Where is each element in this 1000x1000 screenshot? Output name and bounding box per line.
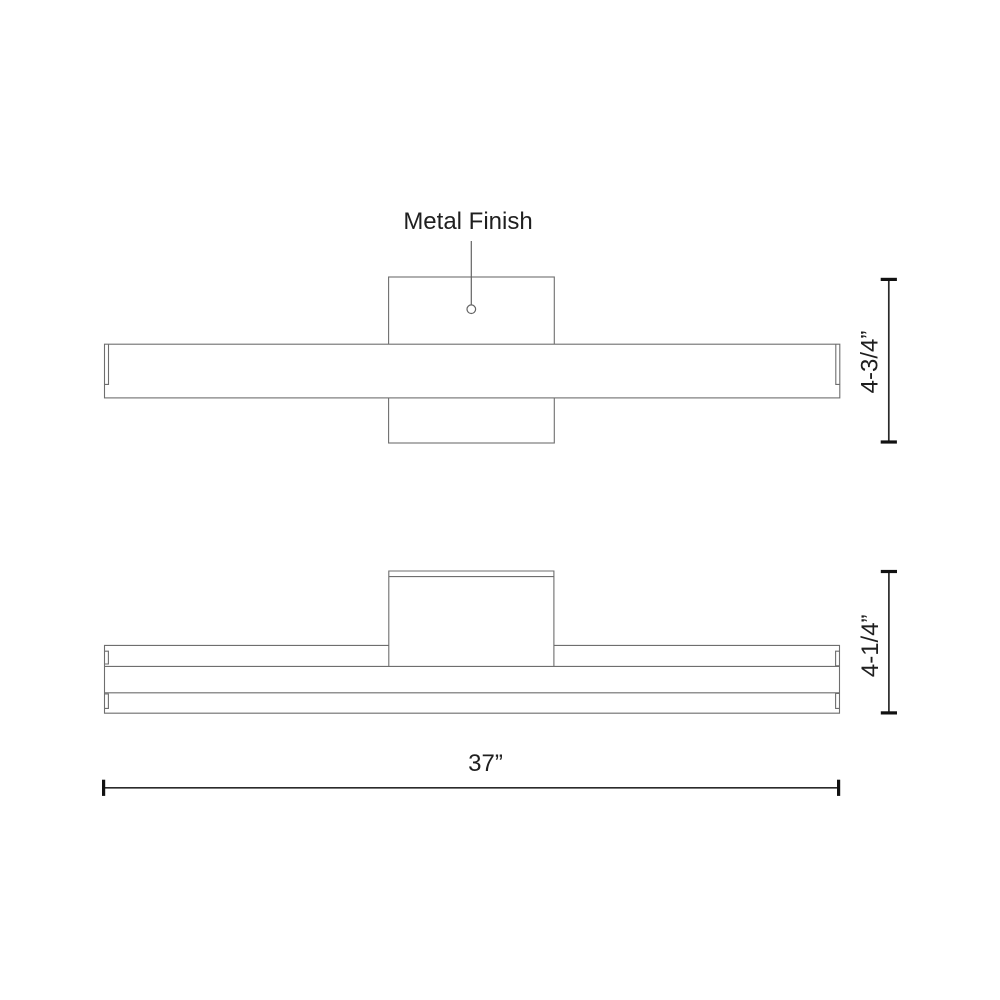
svg-text:37”: 37” [468,750,503,777]
svg-text:Metal Finish: Metal Finish [403,208,532,235]
svg-text:4-3/4”: 4-3/4” [857,331,884,394]
svg-text:4-1/4”: 4-1/4” [857,614,884,677]
